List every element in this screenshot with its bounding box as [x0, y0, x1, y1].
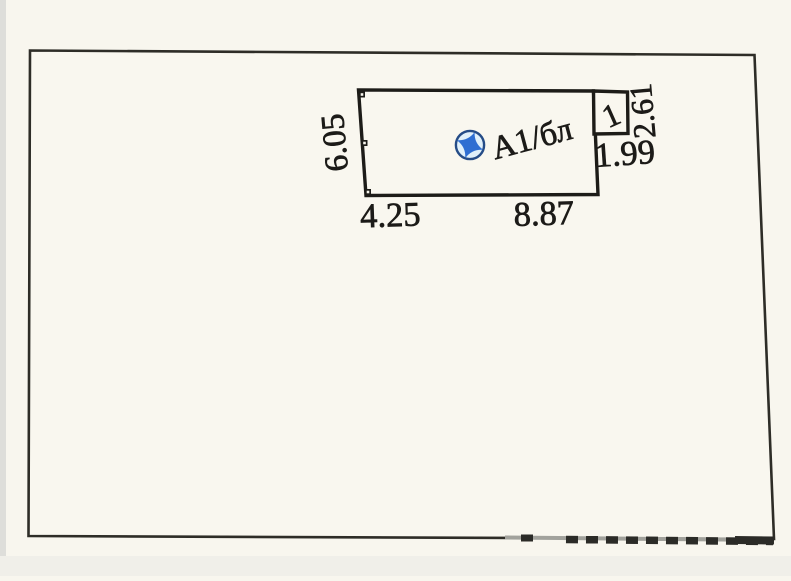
- svg-text:4.25: 4.25: [359, 195, 421, 235]
- svg-text:2.61: 2.61: [623, 82, 663, 140]
- svg-text:8.87: 8.87: [513, 194, 575, 234]
- svg-text:1.99: 1.99: [593, 133, 656, 175]
- svg-text:6.05: 6.05: [315, 112, 356, 173]
